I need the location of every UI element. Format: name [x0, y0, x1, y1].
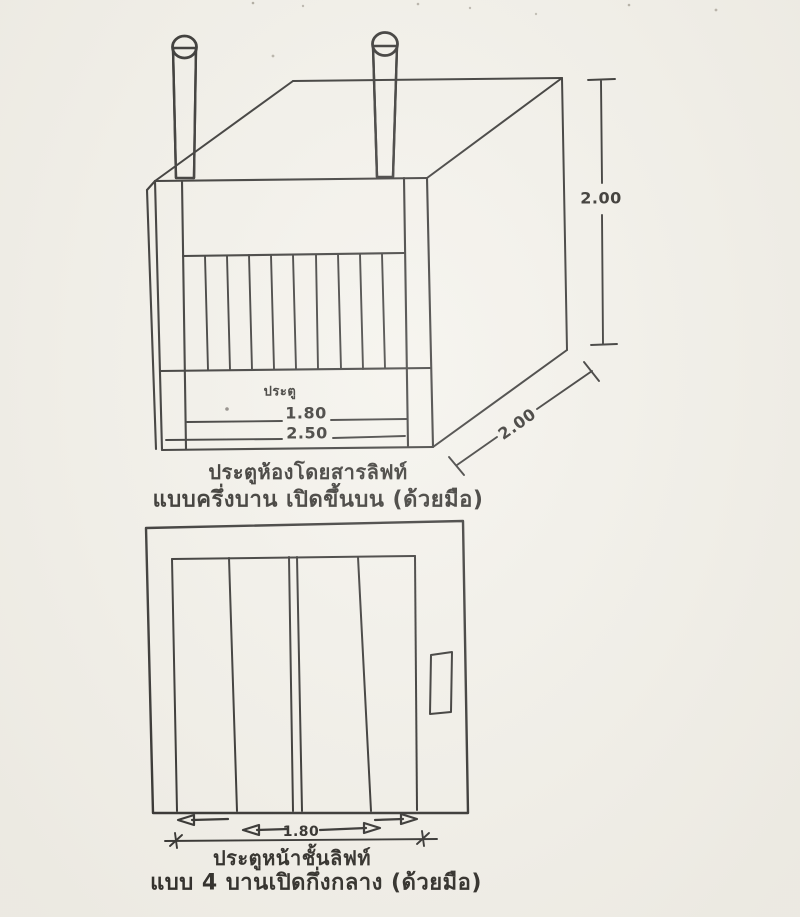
cabin-height-value: 2.00: [580, 189, 621, 208]
cabin-caption-line2: แบบครึ่งบาน เปิดขึ้นบน (ด้วยมือ): [153, 482, 484, 517]
cabin-gate-bars: [205, 254, 385, 370]
cabin-opening-width-value: 1.80: [285, 404, 326, 423]
guide-post-left: [173, 36, 197, 178]
landing-door-panels: [172, 556, 417, 811]
scanned-drawing-page: ประตู 1.80 2.50 2.00 2.00 ประตูห้องโดยสา…: [0, 0, 800, 917]
cabin-right-face: [433, 78, 567, 447]
call-button-panel: [430, 652, 452, 714]
scan-specks: [225, 2, 717, 411]
cabin-top-face: [155, 78, 562, 181]
cabin-height-dimension-line: [588, 79, 617, 345]
landing-door-frame: [146, 521, 468, 813]
landing-caption-line2: แบบ 4 บานเปิดกึ่งกลาง (ด้วยมือ): [150, 865, 482, 900]
cabin-overall-width-value: 2.50: [286, 424, 327, 443]
landing-opening-width-value: 1.80: [283, 824, 320, 840]
cabin-door-tag: ประตู: [264, 381, 297, 402]
guide-post-right: [373, 33, 398, 178]
